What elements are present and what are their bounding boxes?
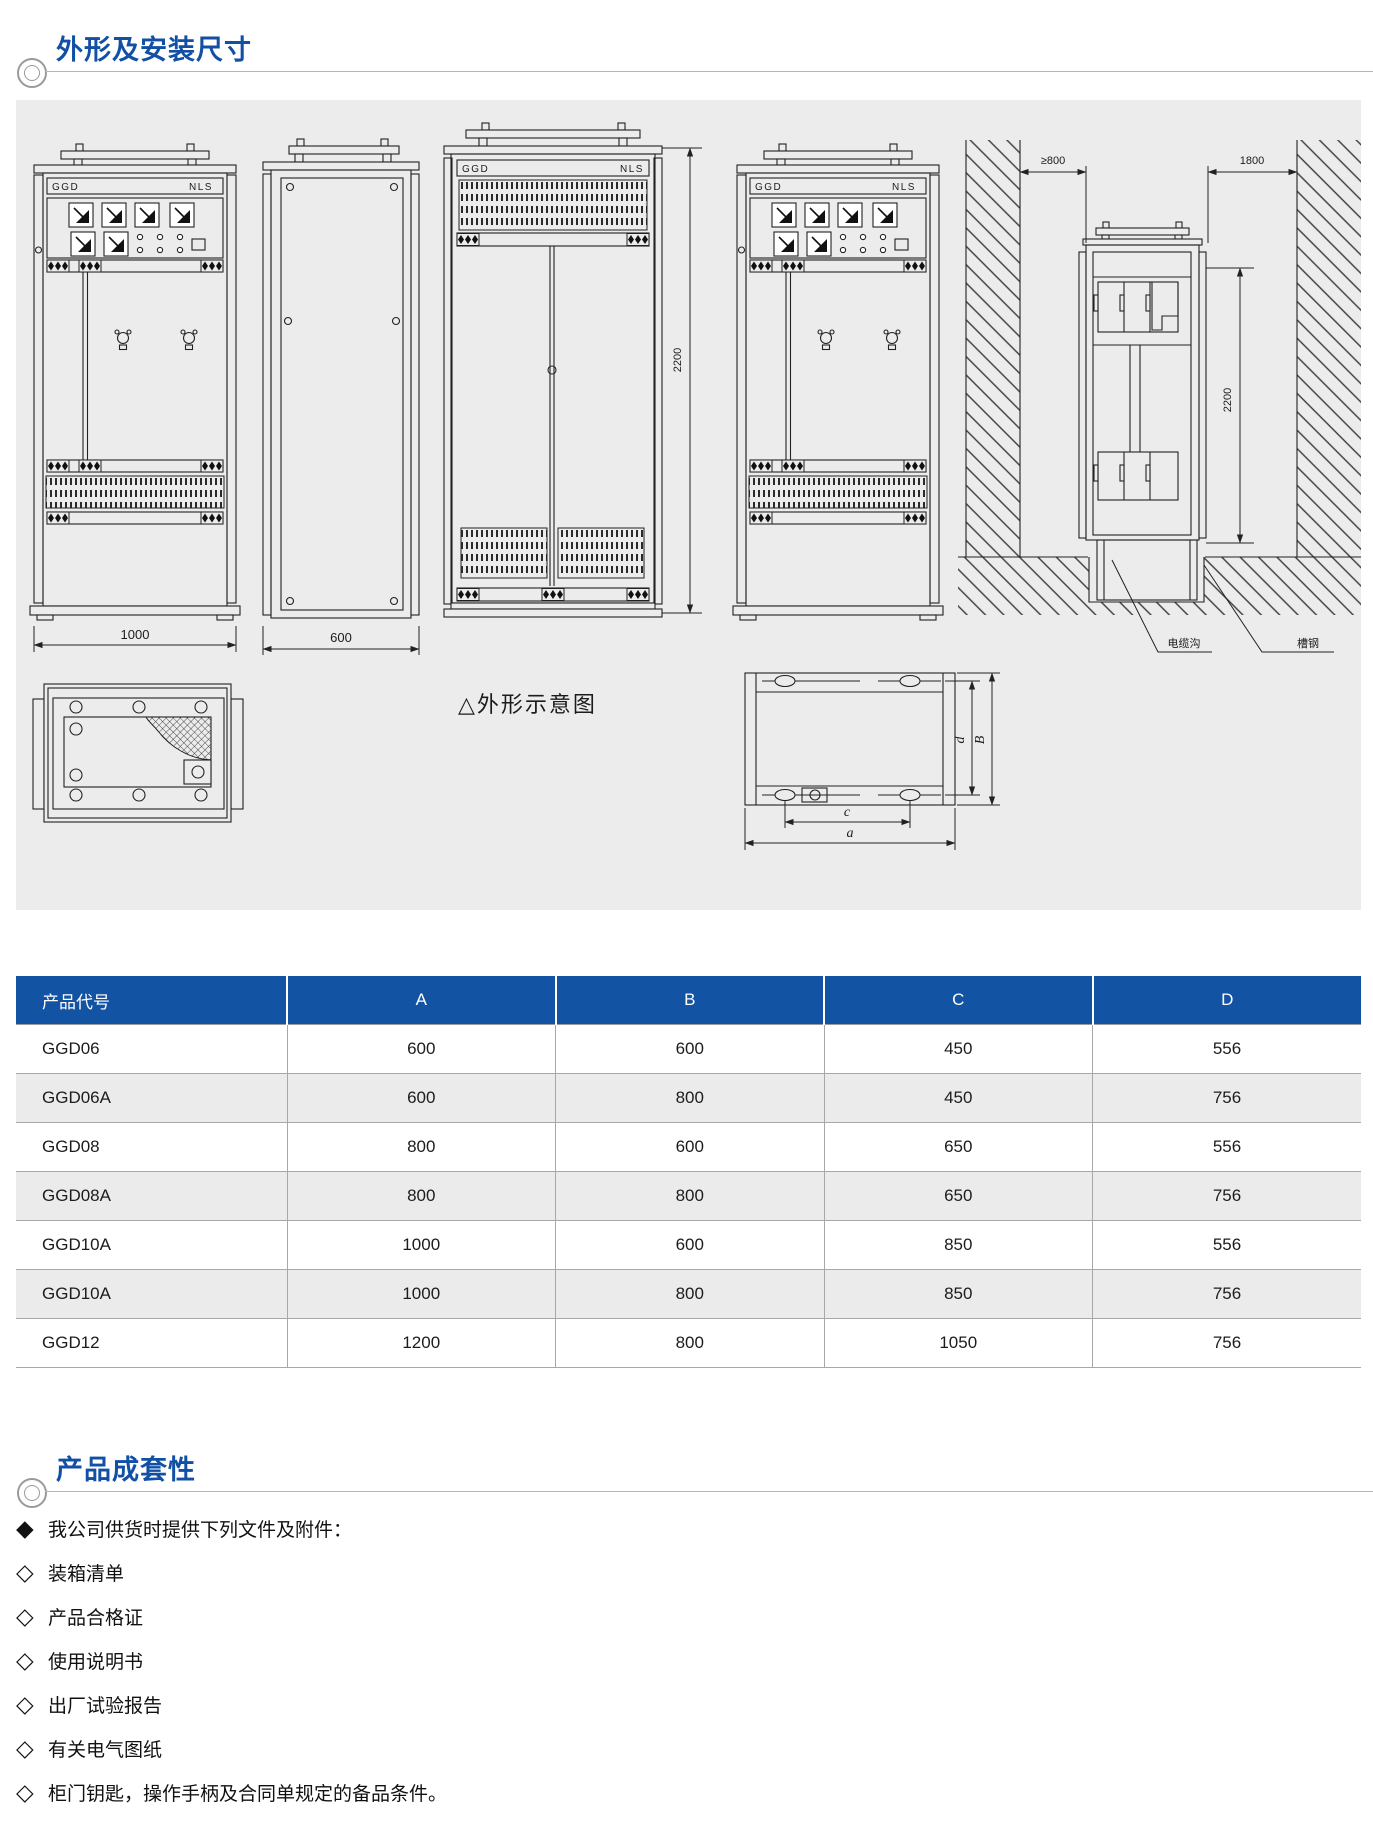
list-item-text: 有关电气图纸: [48, 1735, 162, 1762]
channel-steel-label: 槽钢: [1297, 637, 1319, 650]
dim-install-height-label: 2200: [1222, 388, 1234, 412]
cell: 600: [556, 1221, 825, 1270]
cell: 756: [1093, 1172, 1362, 1221]
cell: 800: [556, 1172, 825, 1221]
dim-depth-600-label: 600: [330, 630, 352, 645]
dim-plan-c-label: c: [844, 805, 851, 820]
cabinet-model-label: GGD: [462, 164, 489, 175]
cell: 850: [824, 1221, 1093, 1270]
list-item: ◇ 柜门钥匙，操作手柄及合同单规定的备品条件。: [16, 1770, 447, 1814]
cell: 800: [287, 1123, 556, 1172]
table-row: GGD06A 600 800 450 756: [16, 1074, 1361, 1123]
diamond-outline-icon: ◇: [16, 1605, 48, 1628]
dim-plan-B-label: B: [973, 735, 988, 744]
table-row: GGD10A 1000 600 850 556: [16, 1221, 1361, 1270]
column-header-c: C: [824, 976, 1093, 1025]
diamond-outline-icon: ◇: [16, 1737, 48, 1760]
cell: 600: [287, 1025, 556, 1074]
cell: 650: [824, 1123, 1093, 1172]
dim-clearance-left: [1020, 166, 1086, 243]
table-row: GGD06 600 600 450 556: [16, 1025, 1361, 1074]
column-header-product-code: 产品代号: [16, 976, 287, 1025]
list-item: ◇ 使用说明书: [16, 1638, 447, 1682]
dim-clearance-right: [1208, 166, 1297, 243]
table-row: GGD10A 1000 800 850 756: [16, 1270, 1361, 1319]
dim-plan-d-label: d: [953, 736, 968, 744]
cell-product-code: GGD06: [16, 1025, 287, 1074]
section-title-completeness: 产品成套性: [56, 1448, 196, 1487]
list-item-text: 柜门钥匙，操作手柄及合同单规定的备品条件。: [48, 1779, 447, 1806]
cell-product-code: GGD08: [16, 1123, 287, 1172]
cell: 800: [556, 1270, 825, 1319]
table-row: GGD08 800 600 650 556: [16, 1123, 1361, 1172]
foundation-plan-view: [745, 673, 955, 805]
dim-height-2200-label: 2200: [672, 348, 684, 372]
list-item-text: 装箱清单: [48, 1559, 124, 1586]
list-item: ◇ 装箱清单: [16, 1550, 447, 1594]
cell: 650: [824, 1172, 1093, 1221]
cell: 850: [824, 1270, 1093, 1319]
cabinet-front-view-2: [733, 144, 943, 620]
supply-list: ◆ 我公司供货时提供下列文件及附件： ◇ 装箱清单 ◇ 产品合格证 ◇ 使用说明…: [16, 1506, 447, 1814]
list-item-text: 使用说明书: [48, 1647, 143, 1674]
cell: 450: [824, 1025, 1093, 1074]
list-item-text: 我公司供货时提供下列文件及附件：: [48, 1515, 352, 1542]
cell: 1050: [824, 1319, 1093, 1368]
dim-width-1000-label: 1000: [121, 627, 150, 642]
drawing-caption: △外形示意图: [458, 692, 597, 717]
table-header-row: 产品代号 A B C D: [16, 976, 1361, 1025]
cable-trench-label: 电缆沟: [1168, 637, 1201, 650]
dimension-table: 产品代号 A B C D GGD06 600 600 450 556 GGD06…: [16, 976, 1361, 1368]
column-header-b: B: [556, 976, 825, 1025]
list-item: ◇ 出厂试验报告: [16, 1682, 447, 1726]
cabinet-rear-view: GGD NLS: [444, 123, 662, 617]
cell: 600: [556, 1025, 825, 1074]
section-marker-icon: [17, 1478, 47, 1508]
cell: 800: [287, 1172, 556, 1221]
cell: 1000: [287, 1270, 556, 1319]
dim-clearance-left-label: ≥800: [1041, 155, 1065, 167]
list-item: ◇ 产品合格证: [16, 1594, 447, 1638]
cell-product-code: GGD08A: [16, 1172, 287, 1221]
column-header-a: A: [287, 976, 556, 1025]
cell-product-code: GGD12: [16, 1319, 287, 1368]
diamond-outline-icon: ◇: [16, 1693, 48, 1716]
dim-clearance-right-label: 1800: [1240, 155, 1264, 167]
technical-drawings: GGD NLS: [16, 100, 1361, 910]
cell: 600: [556, 1123, 825, 1172]
cell: 1000: [287, 1221, 556, 1270]
list-item: ◆ 我公司供货时提供下列文件及附件：: [16, 1506, 447, 1550]
cabinet-front-view-1: [30, 144, 240, 620]
installation-view: [958, 140, 1361, 615]
catalog-page: 外形及安装尺寸: [0, 0, 1373, 1848]
cell: 756: [1093, 1319, 1362, 1368]
cabinet-series-label: NLS: [620, 164, 644, 175]
cell: 556: [1093, 1025, 1362, 1074]
list-item: ◇ 有关电气图纸: [16, 1726, 447, 1770]
column-header-d: D: [1093, 976, 1362, 1025]
cell: 800: [556, 1319, 825, 1368]
dim-height-2200: [662, 148, 702, 613]
section-title-dimensions: 外形及安装尺寸: [56, 28, 252, 67]
drawings-panel: GGD NLS: [16, 100, 1361, 910]
table-row: GGD12 1200 800 1050 756: [16, 1319, 1361, 1368]
cell: 1200: [287, 1319, 556, 1368]
cell: 450: [824, 1074, 1093, 1123]
section-divider: [45, 71, 1373, 72]
list-item-text: 产品合格证: [48, 1603, 143, 1630]
diamond-outline-icon: ◇: [16, 1781, 48, 1804]
cell-product-code: GGD06A: [16, 1074, 287, 1123]
roof-plate-detail: [33, 684, 243, 822]
cell: 600: [287, 1074, 556, 1123]
section-marker-icon: [17, 58, 47, 88]
cabinet-side-view: [263, 139, 419, 618]
section-divider: [45, 1491, 1373, 1492]
list-item-text: 出厂试验报告: [48, 1691, 162, 1718]
dim-plan-a-label: a: [847, 826, 854, 841]
cell-product-code: GGD10A: [16, 1270, 287, 1319]
diamond-outline-icon: ◇: [16, 1649, 48, 1672]
cell: 800: [556, 1074, 825, 1123]
cell: 556: [1093, 1123, 1362, 1172]
cell: 556: [1093, 1221, 1362, 1270]
cell: 756: [1093, 1074, 1362, 1123]
cell-product-code: GGD10A: [16, 1221, 287, 1270]
table-row: GGD08A 800 800 650 756: [16, 1172, 1361, 1221]
diamond-filled-icon: ◆: [16, 1517, 48, 1540]
cell: 756: [1093, 1270, 1362, 1319]
diamond-outline-icon: ◇: [16, 1561, 48, 1584]
